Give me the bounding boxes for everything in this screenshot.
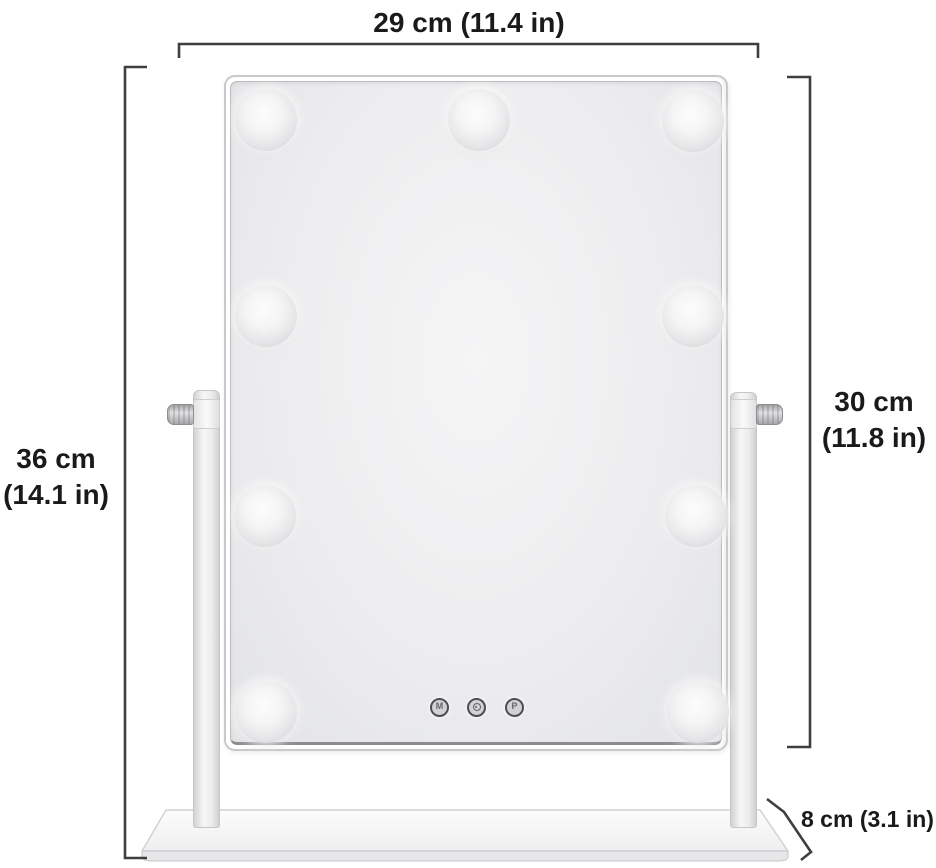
mirror-height-dimension-label: 30 cm (11.8 in) xyxy=(818,384,930,456)
button-p: P xyxy=(505,698,524,717)
total-height-line1: 36 cm xyxy=(0,441,112,477)
mirror-height-line2: (11.8 in) xyxy=(818,420,930,456)
product-dimension-diagram: M P 29 cm (11.4 in) 36 cm (14.1 in) 30 c… xyxy=(0,0,936,868)
light-bulb-top-right xyxy=(662,90,724,152)
hinge-right xyxy=(730,399,757,429)
mirror-height-line1: 30 cm xyxy=(818,384,930,420)
hinge-left xyxy=(193,399,220,429)
power-button xyxy=(467,698,486,717)
light-bulb-mid2-left xyxy=(234,485,296,547)
power-icon xyxy=(473,703,481,711)
total-height-line2: (14.1 in) xyxy=(0,477,112,513)
button-m: M xyxy=(430,698,449,717)
pivot-knob-left xyxy=(167,404,194,425)
light-bulb-bottom-left xyxy=(235,681,297,743)
light-bulb-mid2-right xyxy=(665,485,727,547)
width-dimension-label: 29 cm (11.4 in) xyxy=(279,7,659,39)
stand-arm-right xyxy=(730,392,757,828)
light-bulb-top-center xyxy=(448,89,510,151)
stand-arm-left xyxy=(193,390,220,828)
pivot-knob-right xyxy=(756,404,783,425)
base-top-surface xyxy=(142,810,788,851)
light-bulb-bottom-right xyxy=(667,681,729,743)
base-depth-dimension-label: 8 cm (3.1 in) xyxy=(801,806,934,833)
base-front-edge xyxy=(142,851,788,861)
light-bulb-mid1-left xyxy=(235,285,297,347)
light-bulb-top-left xyxy=(235,89,297,151)
mirror-glass: M P xyxy=(230,81,722,745)
mirror-panel: M P xyxy=(224,75,728,751)
total-height-dimension-label: 36 cm (14.1 in) xyxy=(0,441,112,513)
light-bulb-mid1-right xyxy=(662,285,724,347)
